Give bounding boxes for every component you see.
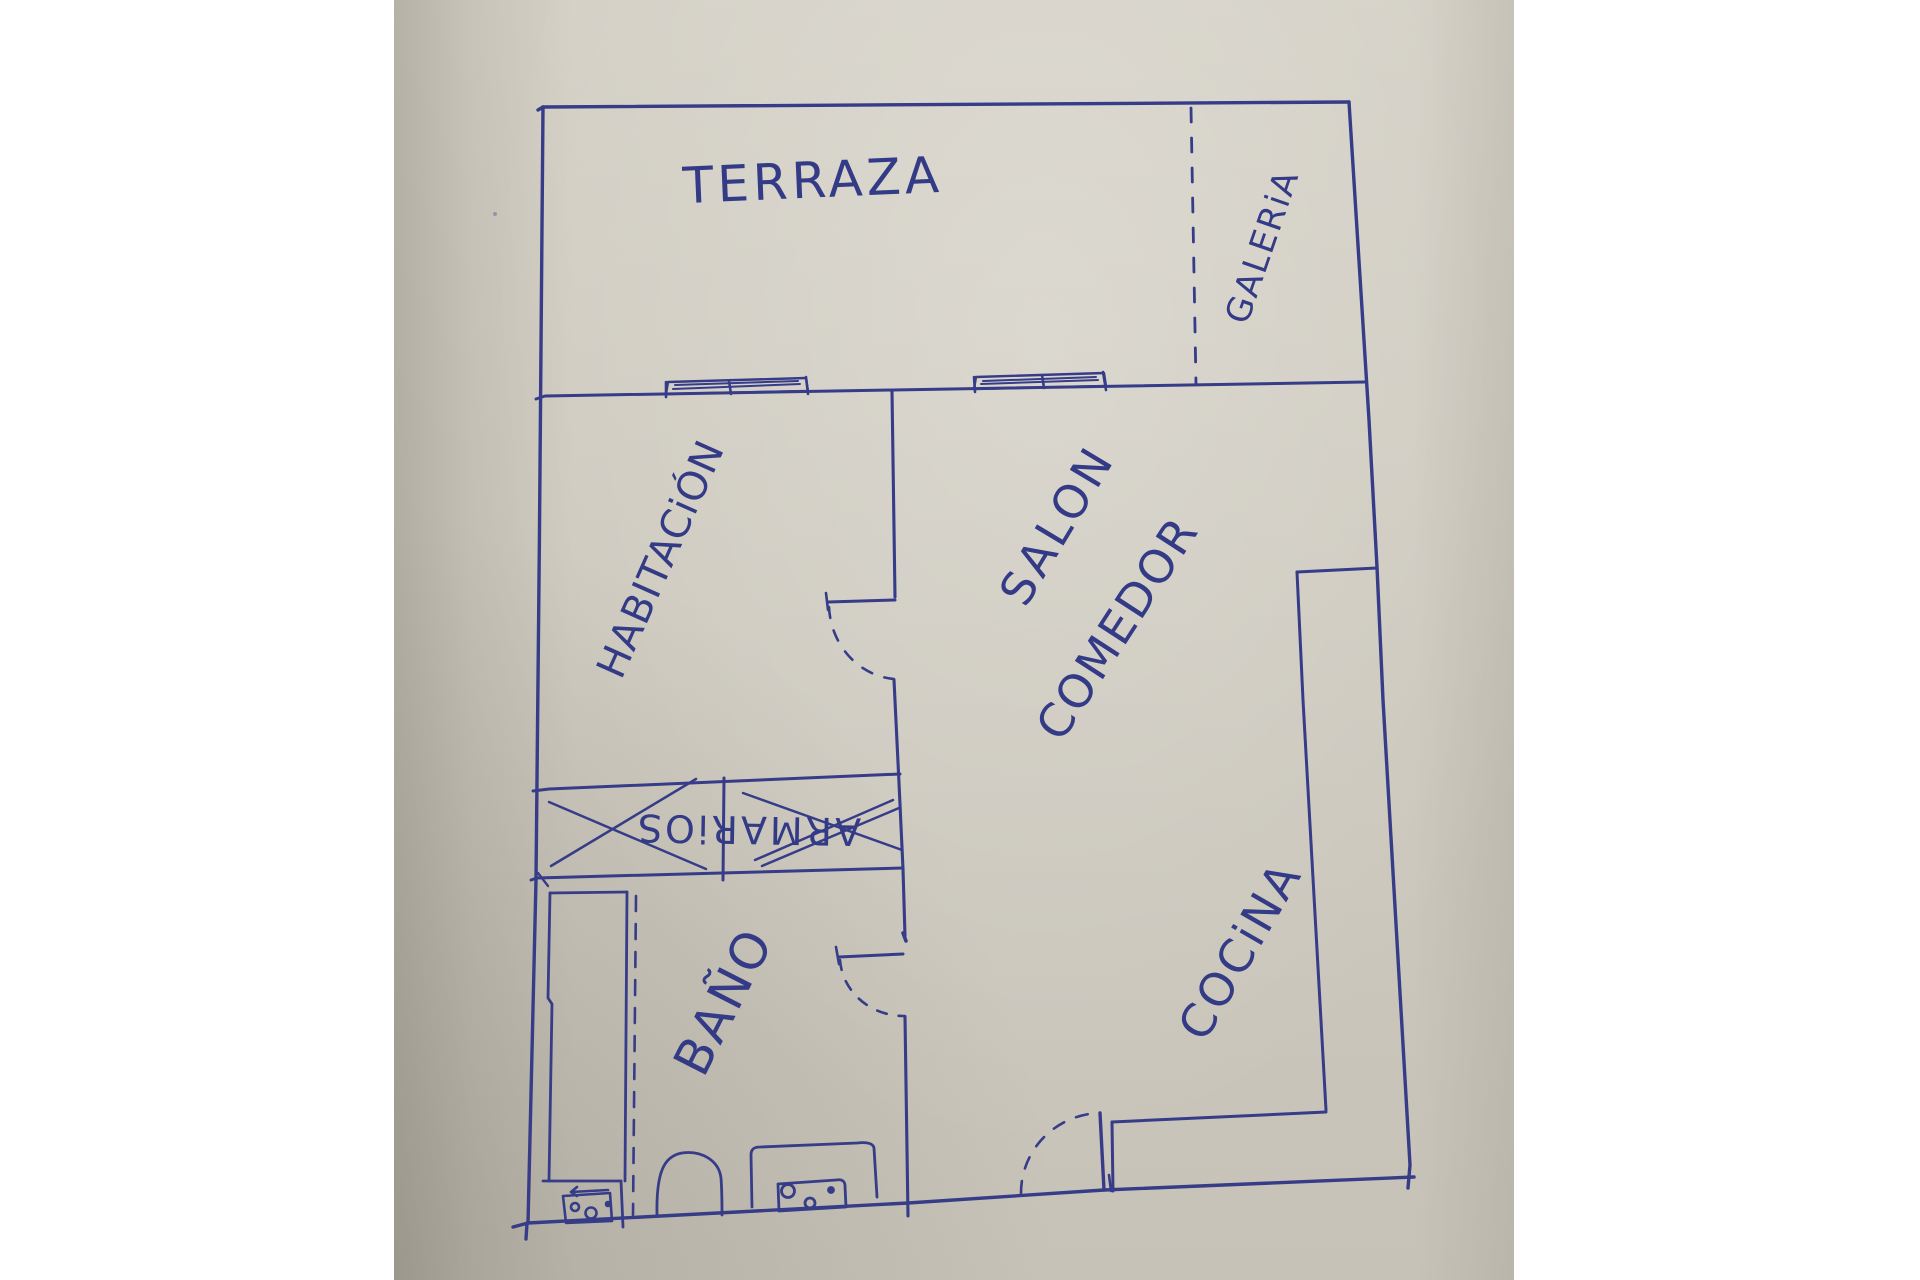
floor-plan-drawing: TERRAZA GALERiA HABITACiÓN SALON COMEDOR…	[0, 0, 1920, 1280]
door-arc	[840, 960, 905, 1016]
label-habitacion: HABITACiÓN	[586, 432, 734, 685]
label-cocina: COCiNA	[1167, 851, 1312, 1049]
label-terraza: TERRAZA	[681, 146, 945, 215]
strip-tick	[538, 873, 548, 886]
door-arc	[1021, 1113, 1100, 1193]
counter-end	[1112, 1122, 1113, 1191]
tub-extension	[621, 1181, 623, 1227]
galeria-dashed-line	[1191, 108, 1196, 384]
cabinet-dot	[606, 1202, 610, 1206]
shower-screen-dashed-line	[633, 896, 636, 1215]
terraza-wall-line	[536, 382, 1365, 399]
wall-right	[1349, 102, 1410, 1188]
wall-left	[528, 107, 543, 1223]
label-bano: BAÑO	[662, 918, 785, 1084]
strip-top	[533, 774, 900, 791]
tub-left	[548, 893, 552, 1181]
pen-speck	[493, 212, 497, 216]
cabinet-knob	[571, 1203, 579, 1211]
basin-drain	[782, 1185, 795, 1198]
leaf-tick	[836, 947, 839, 964]
wall-bottom	[513, 1177, 1414, 1227]
photographed-sketch: TERRAZA GALERiA HABITACiÓN SALON COMEDOR…	[0, 0, 1920, 1280]
label-armarios: ARMARiOS	[635, 806, 862, 854]
counter-top-edge	[1297, 568, 1377, 572]
sink-vanity	[751, 1143, 877, 1211]
window-hatch	[981, 377, 1098, 384]
entrance-door-swing	[1021, 1113, 1111, 1193]
divider-mid	[894, 680, 899, 783]
divider-upper	[892, 391, 895, 597]
counter-inner-vertical	[1297, 572, 1326, 1110]
counter-inner-horizontal	[1112, 1112, 1326, 1122]
vanity-outline	[751, 1143, 877, 1207]
leaf-tick	[826, 593, 828, 610]
tub-top	[550, 892, 627, 893]
tub-right	[625, 892, 627, 1181]
label-salon: SALON	[988, 436, 1125, 615]
habitacion-door-swing	[826, 593, 895, 679]
cabinet-knob	[586, 1208, 597, 1219]
terraza-wall	[536, 382, 1365, 399]
strip-bottom	[531, 868, 903, 880]
door-leaf	[828, 600, 895, 602]
wall-top	[538, 102, 1349, 110]
outer-walls	[513, 102, 1414, 1239]
divider-strip-edge	[899, 783, 903, 869]
divider-bottom	[905, 1017, 908, 1216]
door-arc	[829, 607, 894, 679]
interior-divider-wall	[892, 391, 908, 1216]
bano-door-swing	[836, 947, 905, 1016]
bathtub	[543, 892, 627, 1227]
toilet	[657, 1153, 722, 1216]
divider-lower	[903, 869, 905, 936]
door-leaf	[1100, 1113, 1104, 1190]
door-leaf	[839, 954, 903, 957]
basin-dot	[829, 1188, 834, 1193]
corner-overshoot	[526, 1223, 527, 1239]
kitchen-counter	[1112, 568, 1377, 1191]
label-galeria: GALERiA	[1218, 164, 1308, 329]
